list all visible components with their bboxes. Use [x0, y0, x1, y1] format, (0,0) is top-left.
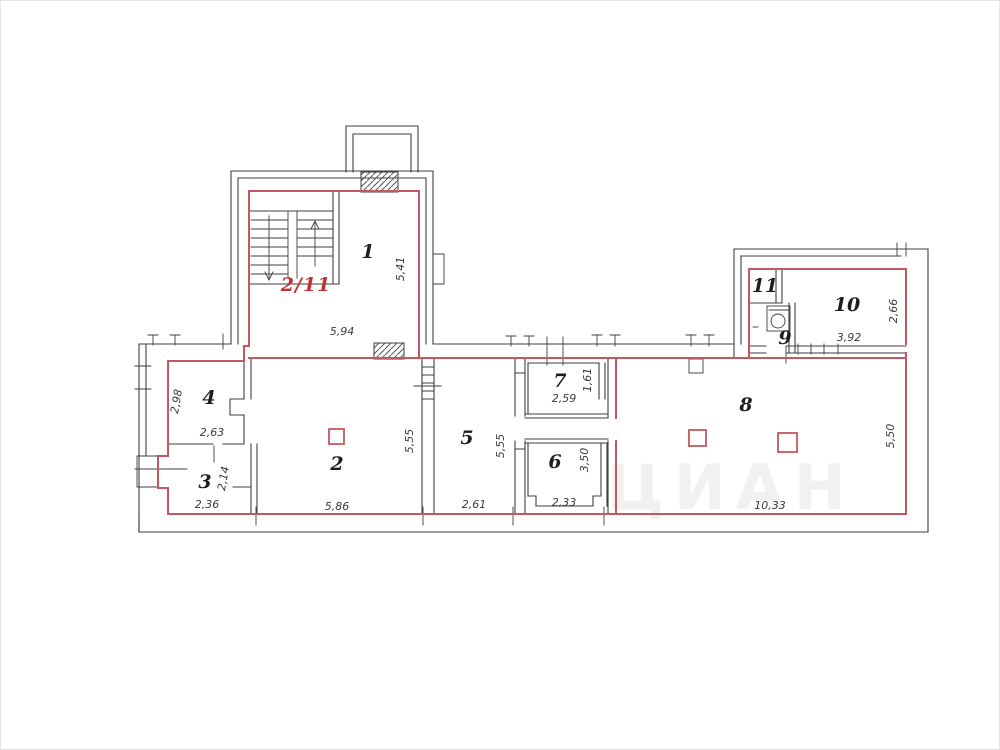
dim-room5-height: 5,55 [494, 434, 507, 459]
room-label-7: 7 [553, 370, 566, 392]
room-label-4: 4 [202, 387, 215, 409]
room-label-9: 9 [778, 327, 791, 349]
dim-room6-width: 2,33 [552, 496, 577, 509]
wall-pilaster [689, 359, 703, 373]
dim-room8-height: 5,50 [884, 424, 897, 449]
dim-room10-height: 2,66 [887, 299, 900, 324]
dim-room7-width: 2,59 [552, 392, 577, 405]
column-room8-right [778, 433, 797, 452]
dim-room6-height: 3,50 [578, 448, 591, 473]
floor-plan-drawing: ЦИАН [1, 1, 1000, 750]
dim-room4-height: 2,98 [168, 388, 185, 414]
columns [329, 429, 797, 452]
room-label-10: 10 [834, 294, 860, 316]
unit-number-label: 2/11 [280, 274, 332, 296]
room-label-1: 1 [361, 241, 374, 263]
room-label-2: 2 [329, 453, 343, 475]
room-label-5: 5 [460, 427, 473, 449]
column-room8-left [689, 430, 706, 446]
dim-room5-width: 2,61 [462, 498, 487, 511]
room-label-6: 6 [548, 451, 561, 473]
dim-room4-width: 2,63 [200, 426, 225, 439]
column-room2 [329, 429, 344, 444]
room-label-11: 11 [752, 275, 778, 297]
room-label-8: 8 [738, 394, 752, 416]
room-label-3: 3 [198, 471, 211, 493]
dim-room2-height: 5,55 [403, 429, 416, 454]
dim-room1-height: 5,41 [394, 257, 407, 282]
dim-room8-width: 10,33 [754, 499, 786, 512]
dim-room10-width: 3,92 [837, 331, 862, 344]
staircase [249, 191, 339, 284]
dim-room3-height: 2,14 [215, 465, 232, 491]
dim-room2-width: 5,86 [325, 500, 350, 513]
dim-room7-height: 1,61 [581, 368, 594, 393]
dim-room1-width: 5,94 [330, 325, 355, 338]
dim-room3-width: 2,36 [195, 498, 220, 511]
hatch-shaft-bottom [374, 343, 404, 359]
floor-plan-page: ЦИАН [0, 0, 1000, 750]
hatch-shaft-top [361, 172, 398, 192]
